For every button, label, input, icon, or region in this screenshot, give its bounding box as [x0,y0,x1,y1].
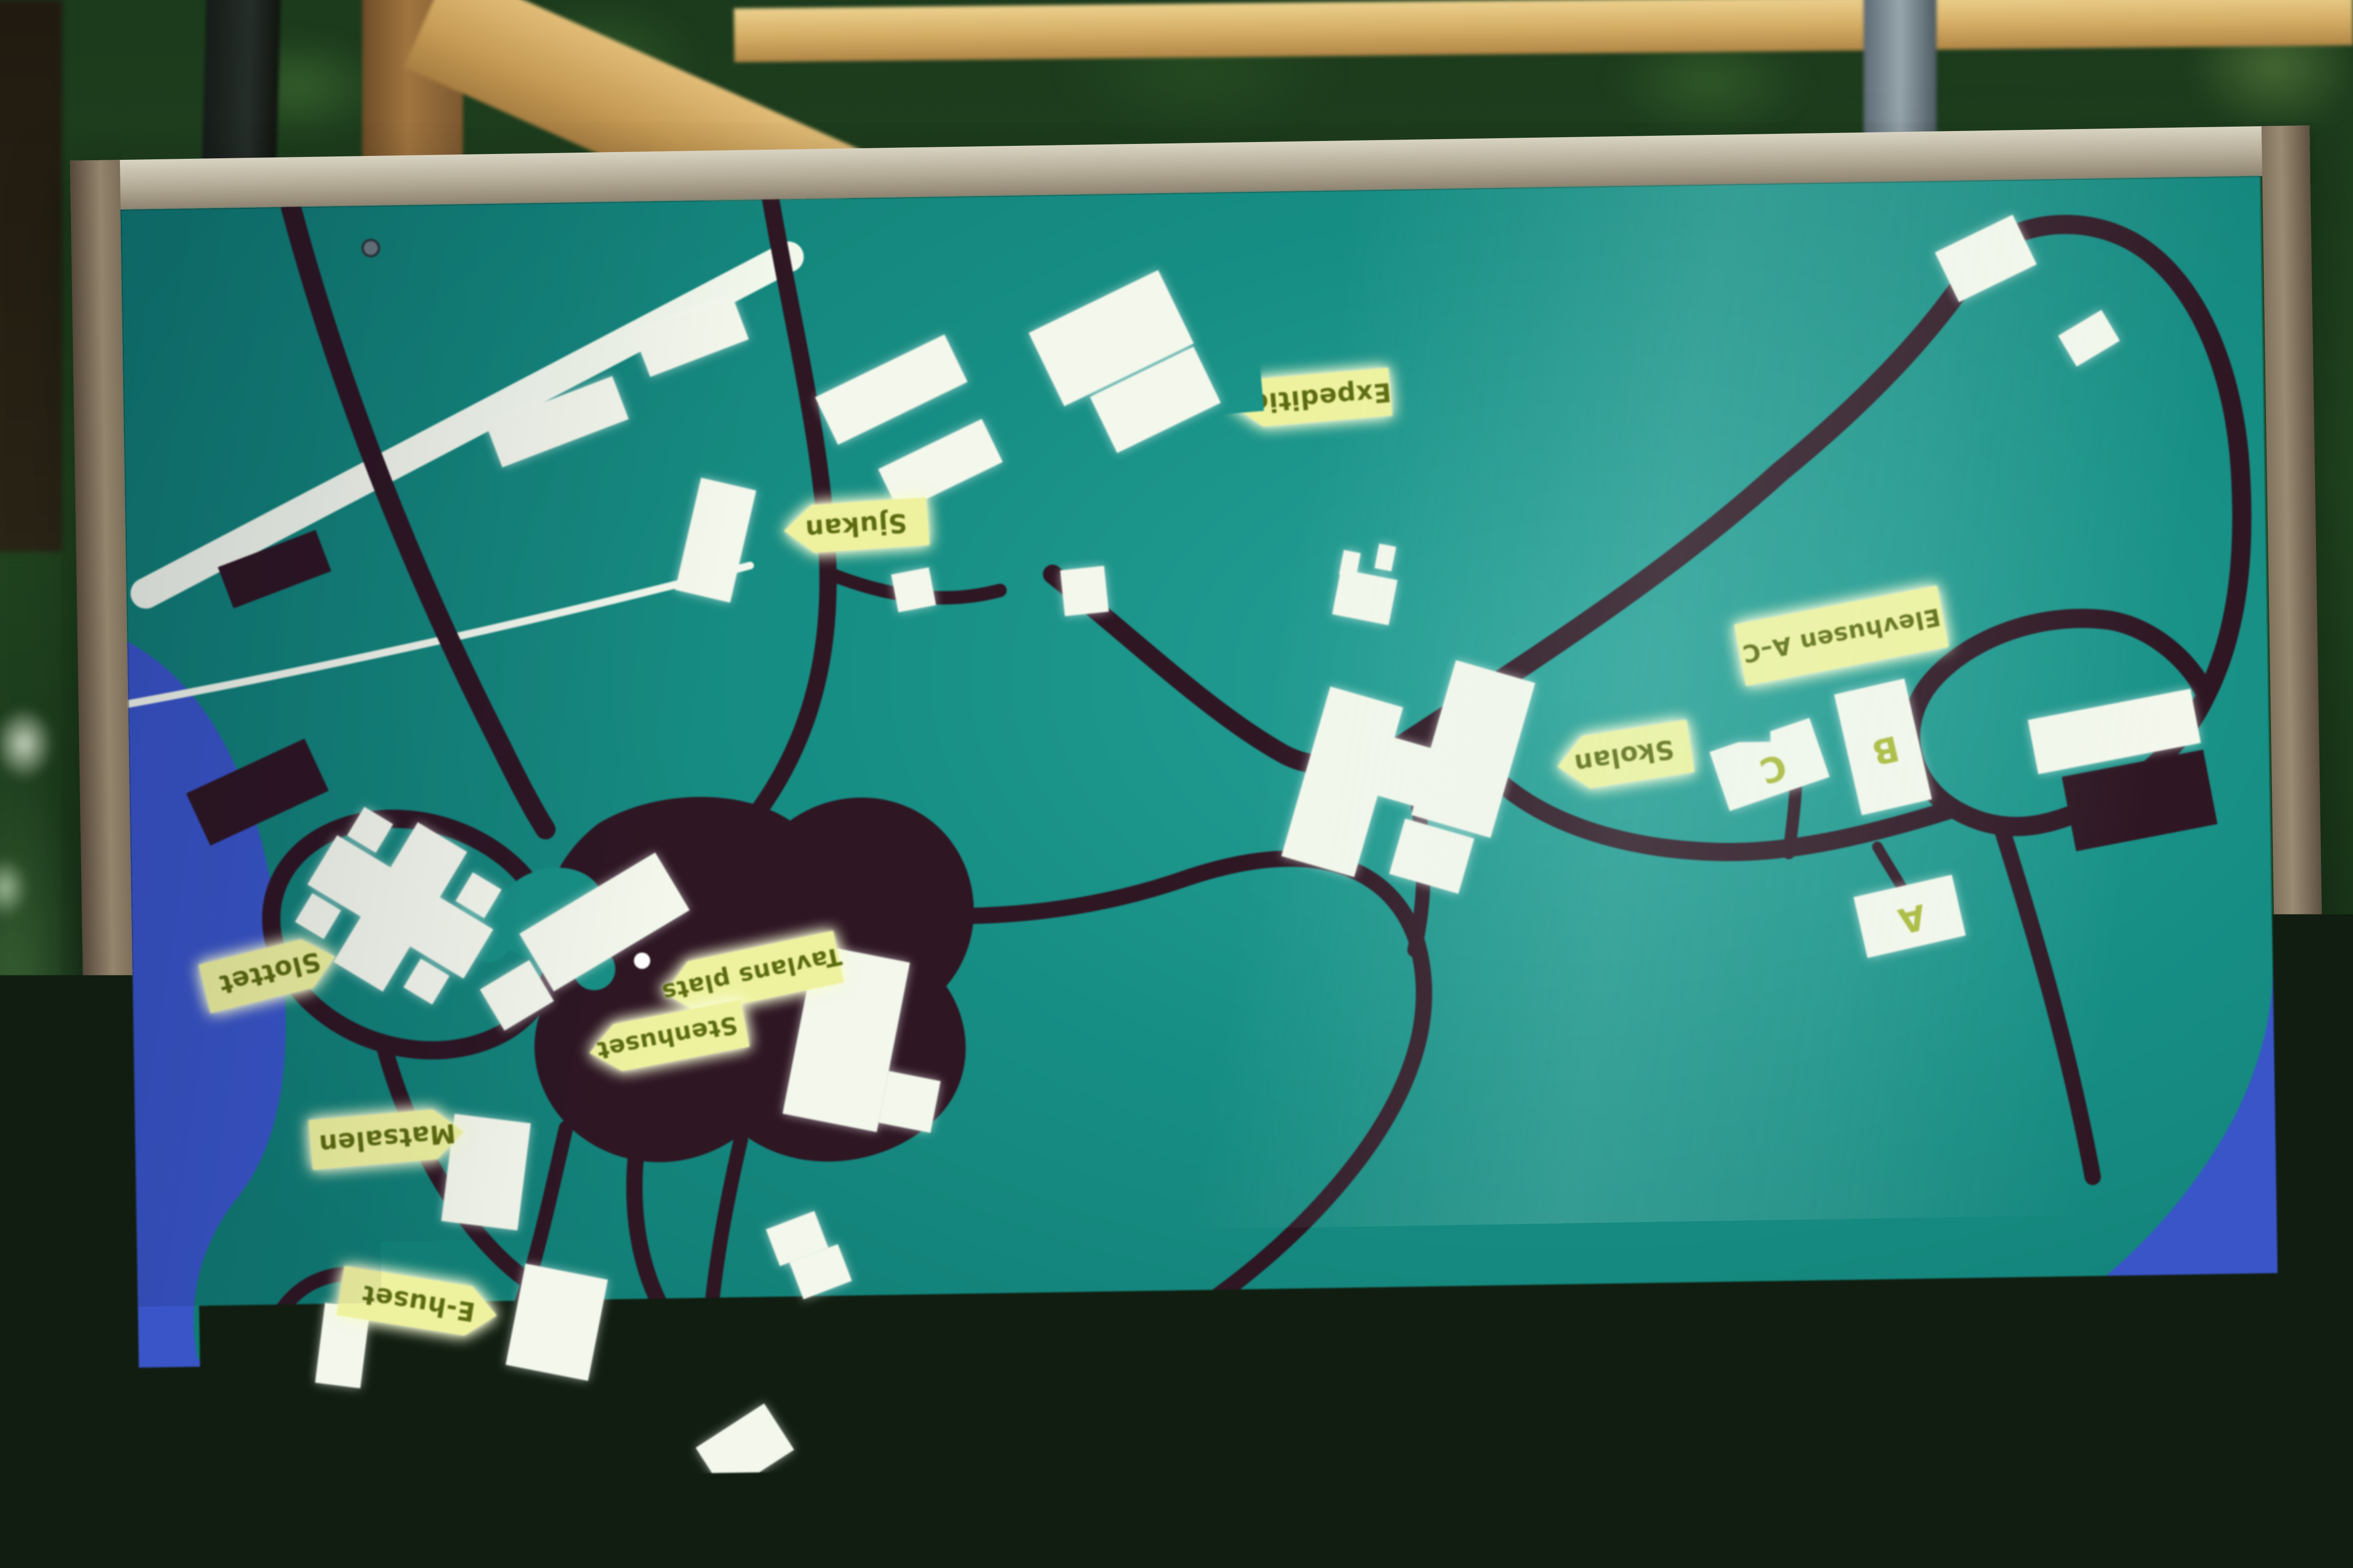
bokeh-foliage-bottom-2 [1075,1511,1343,1568]
building-east-notch [879,1071,940,1133]
building-small-1 [891,567,936,612]
building-small-2 [1060,566,1108,616]
photo-of-map-sign: C B A Expedition Sjukan [0,0,2353,1568]
screw-top [363,240,380,257]
painted-map: C B A Expedition Sjukan [120,176,2280,1482]
map-sign-board: C B A Expedition Sjukan [70,126,2331,1533]
left-dark-post [0,0,62,552]
map-canvas: C B A Expedition Sjukan [120,176,2280,1482]
screw-bottom [522,1453,538,1470]
